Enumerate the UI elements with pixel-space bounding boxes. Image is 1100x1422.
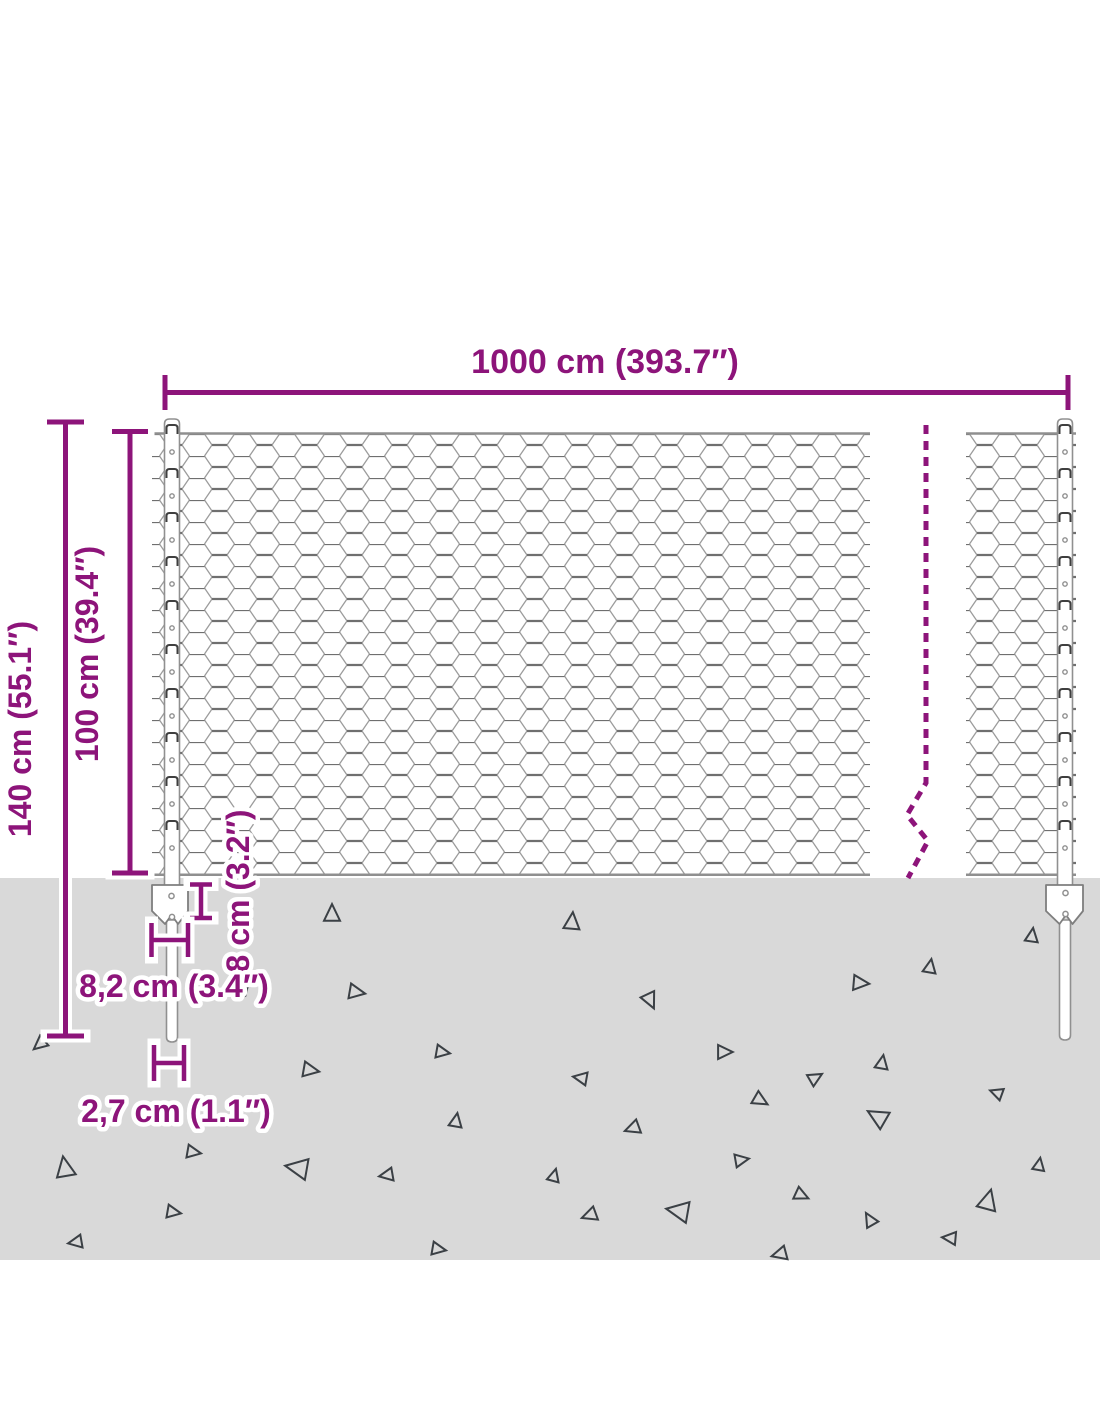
anchor-height-label: 8 cm (3.2″) [220, 810, 256, 973]
post-hole [170, 582, 174, 586]
dimension-total-height-label: 140 cm (55.1″) [2, 621, 38, 837]
post-hole [1063, 626, 1067, 630]
post-hole [1063, 758, 1067, 762]
post-hole [170, 494, 174, 498]
post-hole [170, 670, 174, 674]
post-hole [170, 538, 174, 542]
post-hole [170, 626, 174, 630]
post-hole [170, 450, 174, 454]
post-hole [1063, 450, 1067, 454]
post-hole [1063, 670, 1067, 674]
post-width-label: 2,7 cm (1.1″) [81, 1093, 271, 1129]
dimension-total-width: 1000 cm (393.7″) [165, 343, 1068, 410]
post-hole [1063, 846, 1067, 850]
post-hole [170, 714, 174, 718]
anchor-width-label: 8,2 cm (3.4″) [79, 968, 269, 1004]
diagram-svg: 1000 cm (393.7″) 140 cm (55.1″) 100 cm (… [0, 0, 1100, 1422]
post-hole [1063, 714, 1067, 718]
post-hole [1063, 494, 1067, 498]
dimension-mesh-height-label: 100 cm (39.4″) [69, 546, 105, 762]
post-hole [1063, 582, 1067, 586]
post-hole [170, 846, 174, 850]
fence-dimension-diagram: 1000 cm (393.7″) 140 cm (55.1″) 100 cm (… [0, 0, 1100, 1422]
post-hole [1063, 802, 1067, 806]
dimension-width-label: 1000 cm (393.7″) [471, 343, 739, 381]
post-hole [170, 802, 174, 806]
mesh-panel-left [152, 433, 870, 875]
post-hole [170, 758, 174, 762]
dimension-mesh-height: 100 cm (39.4″) [69, 432, 148, 874]
post-hole [1063, 538, 1067, 542]
break-line [907, 425, 928, 878]
